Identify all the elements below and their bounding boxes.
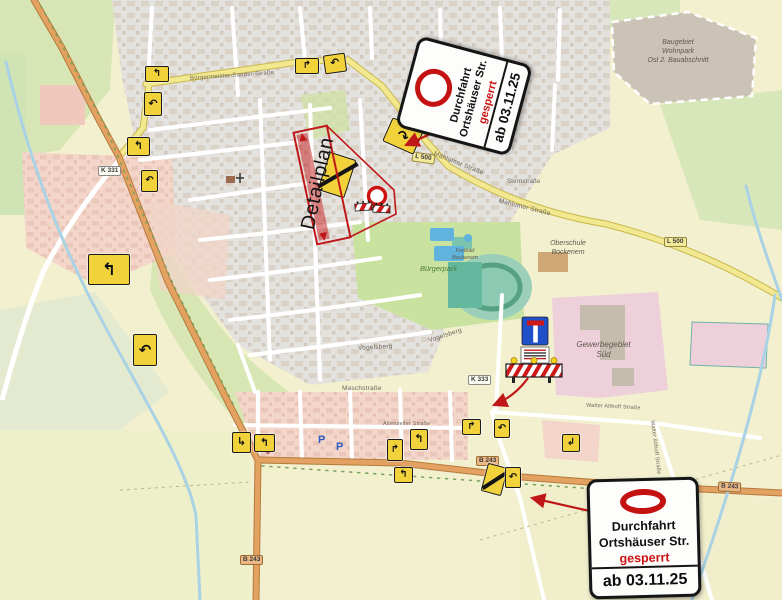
closure-sign-line: Durchfahrt — [612, 518, 676, 535]
closure-sign-upright: Durchfahrt Ortshäuser Str. gesperrt ab 0… — [586, 477, 701, 600]
roadblock-barrier — [506, 317, 562, 383]
warning-lamp — [531, 358, 537, 364]
no-vehicles-icon — [620, 488, 667, 514]
roadblock-mini — [355, 188, 391, 213]
warning-lamp — [511, 358, 517, 364]
closure-sign-gesperrt: gesperrt — [619, 549, 669, 567]
warning-lamp — [551, 358, 557, 364]
map: Bürgermeister-Sander-Straße Mahlumer Str… — [0, 0, 782, 600]
no-vehicles-icon — [411, 65, 456, 111]
no-vehicles-mini-icon — [369, 188, 386, 205]
closure-sign-line: Ortshäuser Str. — [599, 533, 690, 551]
annotation-arrow — [494, 378, 528, 405]
annotation-arrow — [532, 498, 590, 511]
closure-sign-date: ab 03.11.25 — [592, 565, 699, 597]
